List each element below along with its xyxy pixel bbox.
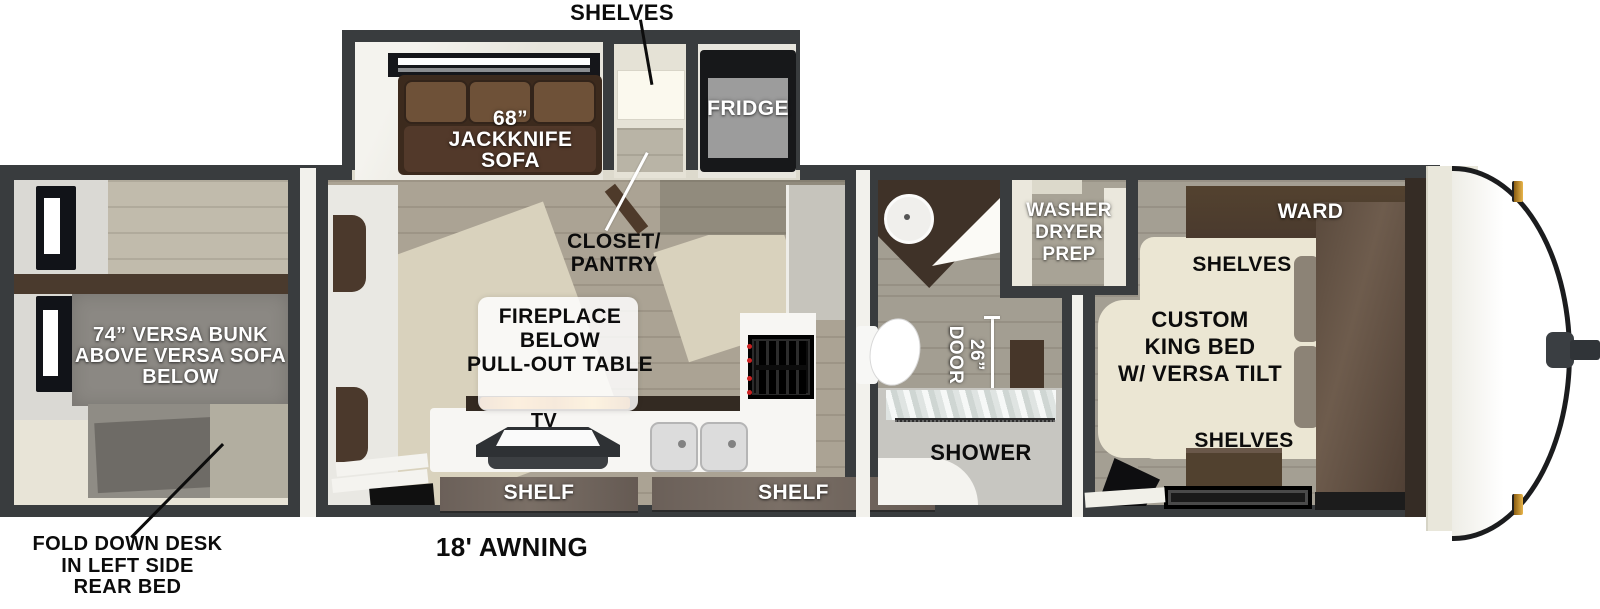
bath-cabinet xyxy=(1010,340,1044,392)
king-bed-label: CUSTOM KING BED W/ VERSA TILT xyxy=(1095,306,1305,387)
wardrobe-column xyxy=(1316,202,1408,502)
rv-floorplan: FIREPLACE BELOW PULL-OUT TABLE TV SHELF … xyxy=(0,0,1600,609)
marker-light-bottom xyxy=(1512,494,1523,515)
bunk-label: 74” VERSA BUNK ABOVE VERSA SOFA BELOW xyxy=(48,325,313,388)
stove-grate xyxy=(756,341,806,365)
vanity-faucet xyxy=(904,214,910,220)
window-glass xyxy=(44,198,60,254)
tv-base xyxy=(488,457,608,469)
versa-sofa-below-cushion xyxy=(94,417,217,493)
shower-glass xyxy=(886,390,1056,420)
ward-label: WARD xyxy=(1258,200,1363,224)
washer-cabinet xyxy=(1032,180,1082,194)
fridge-label: FRIDGE xyxy=(703,97,793,121)
hitch-tongue xyxy=(1570,340,1600,360)
floor-mat xyxy=(1315,492,1405,510)
stove-grate xyxy=(756,370,806,394)
upper-cabinet xyxy=(786,185,845,320)
shower-curtain-rod xyxy=(895,418,1055,422)
closet-pantry-label: CLOSET/ PANTRY xyxy=(550,230,678,276)
sink-faucet xyxy=(678,440,686,448)
pantry-floor xyxy=(617,128,683,172)
tv-label: TV xyxy=(514,410,574,433)
shower-label: SHOWER xyxy=(906,440,1056,466)
marker-light-top xyxy=(1512,181,1523,202)
desk-note-label: FOLD DOWN DESK IN LEFT SIDE REAR BED xyxy=(25,534,230,599)
window-glass xyxy=(398,68,590,72)
awning-label: 18' AWNING xyxy=(407,532,617,563)
door-measure-line xyxy=(991,318,994,392)
seat-cabinet xyxy=(336,387,368,462)
fold-down-desk xyxy=(14,274,288,294)
window-icon xyxy=(388,53,600,77)
fireplace-label: FIREPLACE BELOW PULL-OUT TABLE xyxy=(455,305,665,377)
bed-shelves-top-label: SHELVES xyxy=(1178,253,1306,277)
sofa-label: 68” JACKKNIFE SOFA xyxy=(428,108,593,171)
sink xyxy=(700,422,748,472)
door-measure-cap xyxy=(984,316,1000,319)
stove-knob xyxy=(747,344,752,349)
window-glass xyxy=(398,58,590,65)
stove-knob xyxy=(747,358,752,363)
shelves-callout-label: SHELVES xyxy=(562,0,682,26)
stove-knob xyxy=(747,376,752,381)
seat-cabinet xyxy=(333,215,366,292)
sink xyxy=(650,422,698,472)
versa-sofa-below-step xyxy=(210,404,288,498)
sink-faucet xyxy=(728,440,736,448)
floor-mat xyxy=(1164,486,1312,509)
wall-gap xyxy=(1072,295,1083,517)
bed-shelves-bottom-label: SHELVES xyxy=(1180,429,1308,453)
washer-label: WASHER DRYER PREP xyxy=(1006,200,1132,266)
door-width-label: 26” DOOR xyxy=(943,313,987,397)
stove-knob xyxy=(747,390,752,395)
rear-room-floor xyxy=(108,180,288,280)
shelf-label-left: SHELF xyxy=(440,481,638,505)
